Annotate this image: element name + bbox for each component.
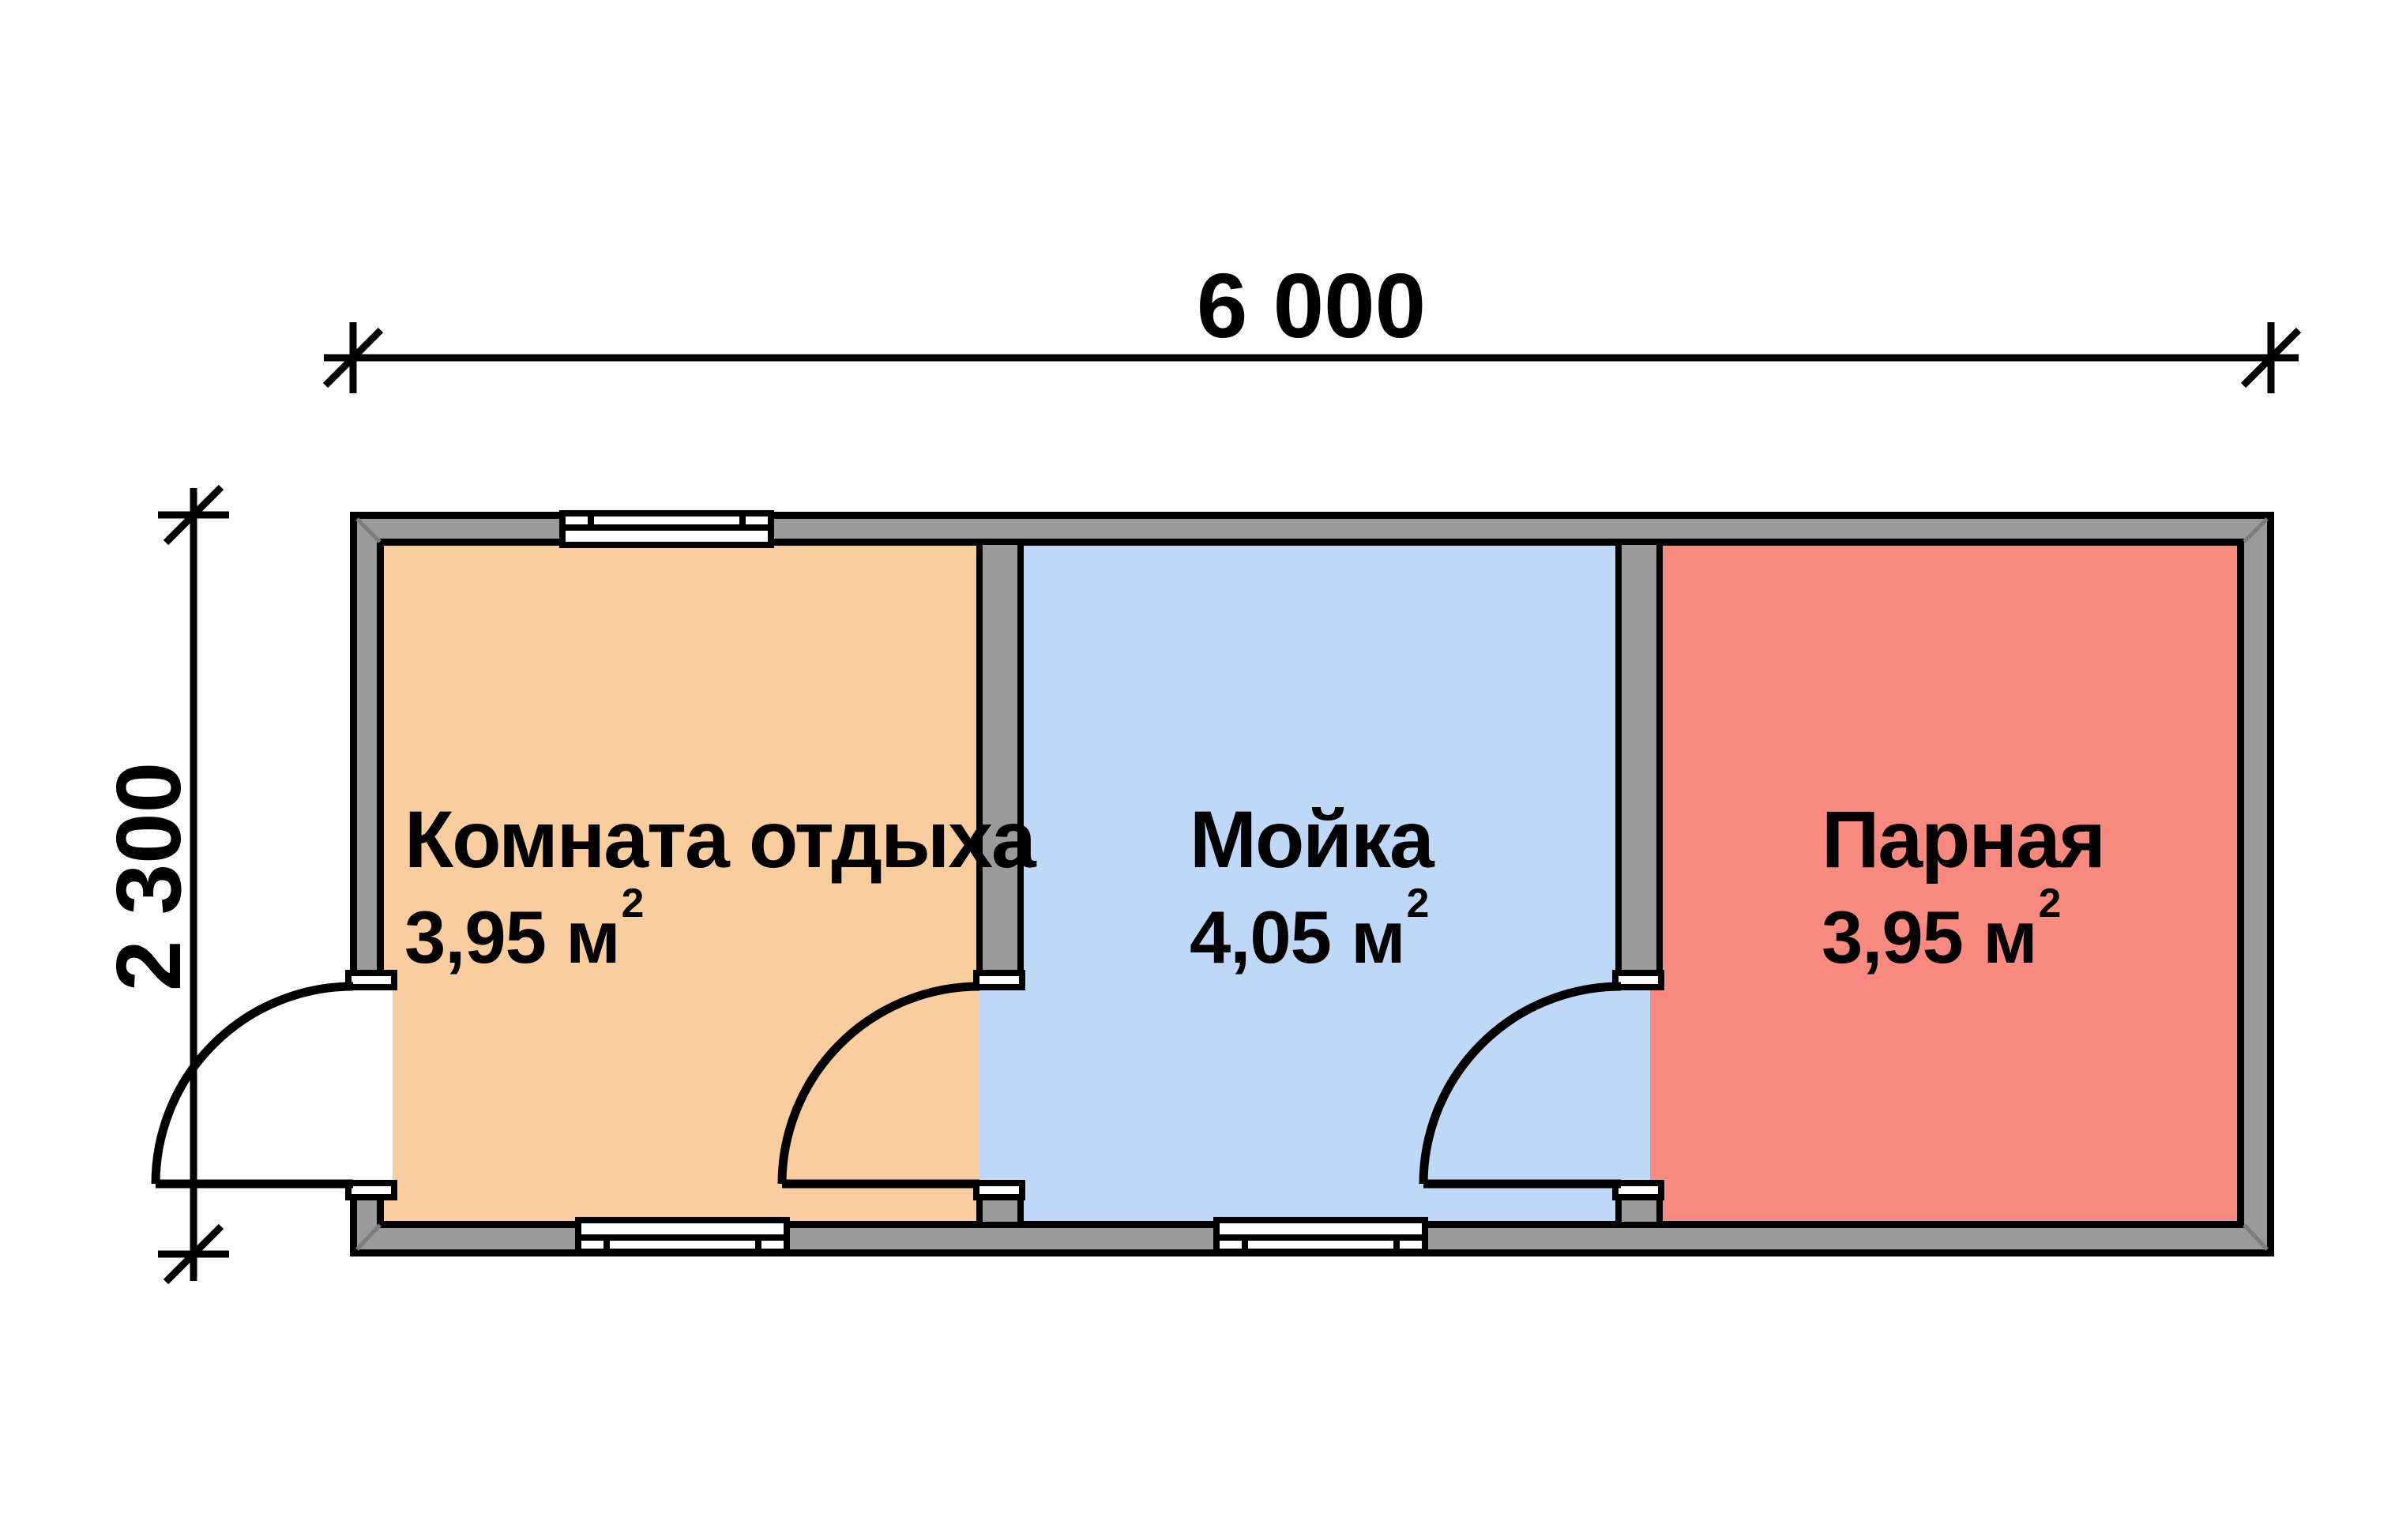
window-bottom-wall-rest-room	[575, 1217, 790, 1255]
room-area-superscript: 2	[622, 880, 644, 926]
window-bottom-wall-wash-room	[1213, 1217, 1428, 1255]
window-frame-divider	[1242, 1234, 1248, 1249]
window-glass-line	[1220, 1234, 1422, 1241]
window-top-wall	[559, 510, 774, 548]
interior-wall-2-upper	[1615, 539, 1663, 976]
width-dimension-slash-right	[2243, 330, 2299, 385]
window-frame-divider	[739, 516, 746, 531]
window-glass-line	[566, 524, 768, 531]
window-frame-divider	[755, 1234, 761, 1249]
room-steam-label: Парная 3,95 м2	[1822, 799, 2104, 975]
door-jamb	[973, 1180, 1025, 1200]
height-dimension-slash-bottom	[166, 1226, 221, 1282]
width-dimension-label: 6 000	[1074, 259, 1548, 352]
room-name: Мойка	[1190, 799, 1433, 880]
room-area: 3,95 м2	[1822, 900, 2104, 975]
room-wash-label: Мойка 4,05 м2	[1190, 799, 1433, 975]
window-frame-divider	[588, 516, 594, 531]
window-frame-divider	[603, 1234, 610, 1249]
door-jamb	[345, 1180, 397, 1200]
room-name: Парная	[1822, 799, 2104, 880]
door-jamb	[345, 970, 397, 990]
height-dimension-label: 2 300	[102, 640, 195, 1114]
height-dimension-slash-top	[166, 487, 221, 543]
room-rest-label: Комната отдыха 3,95 м2	[404, 799, 1035, 975]
room-name: Комната отдыха	[404, 799, 1035, 880]
window-frame-divider	[1393, 1234, 1400, 1249]
width-dimension-slash-left	[325, 330, 381, 385]
floor-plan-canvas: 6 000 2 300 Комната отдыха 3,95 м2 Мойка…	[0, 0, 2395, 1540]
exterior-door-opening	[348, 990, 393, 1180]
room-area-superscript: 2	[2039, 880, 2061, 926]
room-area-superscript: 2	[1407, 880, 1429, 926]
door-jamb	[1612, 1180, 1664, 1200]
room-area: 4,05 м2	[1190, 900, 1433, 975]
room-area: 3,95 м2	[404, 900, 1035, 975]
window-glass-line	[581, 1234, 784, 1241]
door-jamb	[1612, 970, 1664, 990]
